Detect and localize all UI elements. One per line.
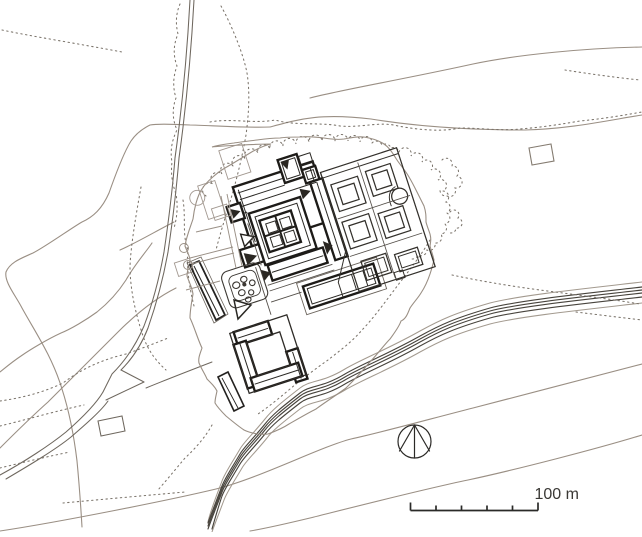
svg-text:100 m: 100 m: [535, 486, 579, 503]
